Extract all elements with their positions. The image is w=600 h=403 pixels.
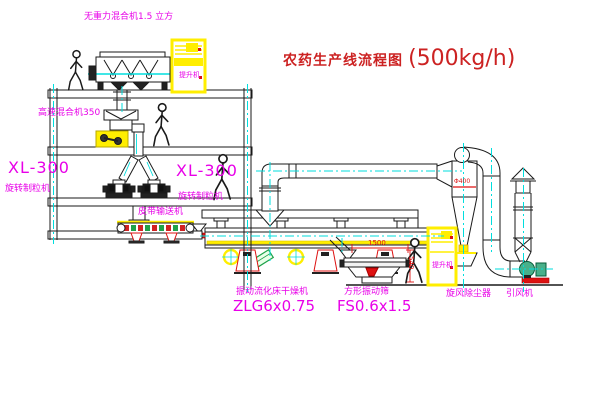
label-granulator-left-model: XL-300: [8, 160, 70, 176]
dim-screen-length: 1500: [368, 240, 386, 247]
worker-top-floor: [69, 51, 83, 90]
label-fan: 引风机: [506, 290, 533, 299]
bucket-elevator-right: [428, 228, 456, 285]
label-dryer-model: ZLG6x0.75: [233, 299, 315, 314]
label-gravity-free-mixer: 无重力混合机1.5 立方: [84, 13, 173, 22]
belt-conveyor: [117, 222, 194, 243]
label-granulator-center-name: 旋转制粒机: [178, 193, 223, 202]
label-screen-model: FS0.6x1.5: [337, 299, 411, 314]
label-high-speed-mixer: 高速混合机350: [38, 109, 100, 118]
dim-cyclone-dia: Φ400: [454, 179, 470, 185]
cad-flow-diagram: 农药生产线流程图 (500kg/h) 无重力混合机1.5 立方 高速混合机350…: [0, 0, 600, 403]
drawing-title: 农药生产线流程图 (500kg/h): [283, 46, 515, 71]
label-elevator-top: 提升机: [179, 72, 200, 79]
worker-floor-2: [154, 104, 169, 146]
label-cyclone: 旋风除尘器: [446, 290, 491, 299]
label-screen-name: 方形振动筛: [344, 288, 389, 297]
label-dryer-name: 振动流化床干燥机: [236, 288, 308, 297]
title-capacity: (500kg/h): [408, 46, 515, 71]
y-splitter-hopper: [119, 156, 158, 182]
dim-screen-height: 540: [407, 256, 414, 269]
label-belt-conveyor: 皮带输送机: [138, 208, 183, 217]
title-chinese: 农药生产线流程图: [283, 53, 403, 69]
label-granulator-left-name: 旋转制粒机: [5, 185, 50, 194]
label-elevator-right: 提升机: [432, 262, 453, 269]
high-speed-mixer: [96, 98, 144, 156]
bucket-elevator-top: [172, 40, 205, 92]
label-granulator-center-model: XL-300: [176, 163, 238, 179]
